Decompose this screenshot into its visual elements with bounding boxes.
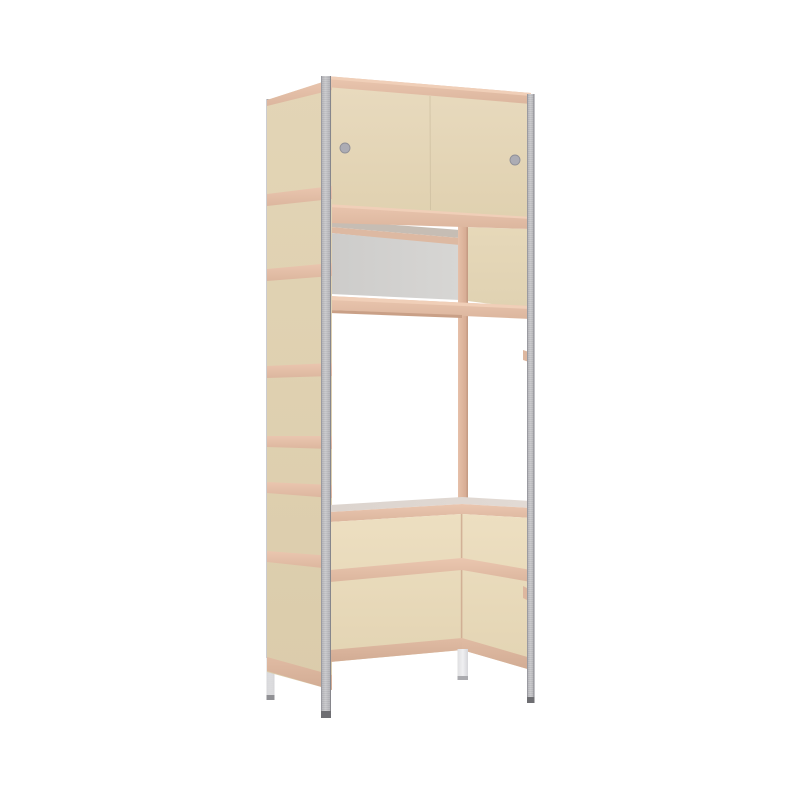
frame-post-front-right bbox=[527, 94, 535, 703]
render-viewport[interactable] bbox=[0, 0, 800, 800]
back-left-foot bbox=[267, 695, 275, 700]
modesty-panel-left bbox=[330, 514, 462, 662]
door-seam bbox=[430, 96, 431, 210]
front-left-foot bbox=[321, 711, 331, 718]
frame-post-front-left bbox=[321, 76, 331, 718]
niche-right-panel bbox=[460, 227, 531, 309]
cabinet-doors bbox=[326, 85, 531, 217]
front-right-foot bbox=[527, 697, 535, 703]
door-handle-hole-right bbox=[510, 155, 520, 165]
back-corner-post bbox=[458, 226, 468, 500]
panel-corner-line bbox=[461, 514, 463, 650]
furniture-render-svg bbox=[0, 0, 800, 800]
desk-leg bbox=[458, 649, 469, 680]
door-handle-hole-left bbox=[340, 143, 350, 153]
